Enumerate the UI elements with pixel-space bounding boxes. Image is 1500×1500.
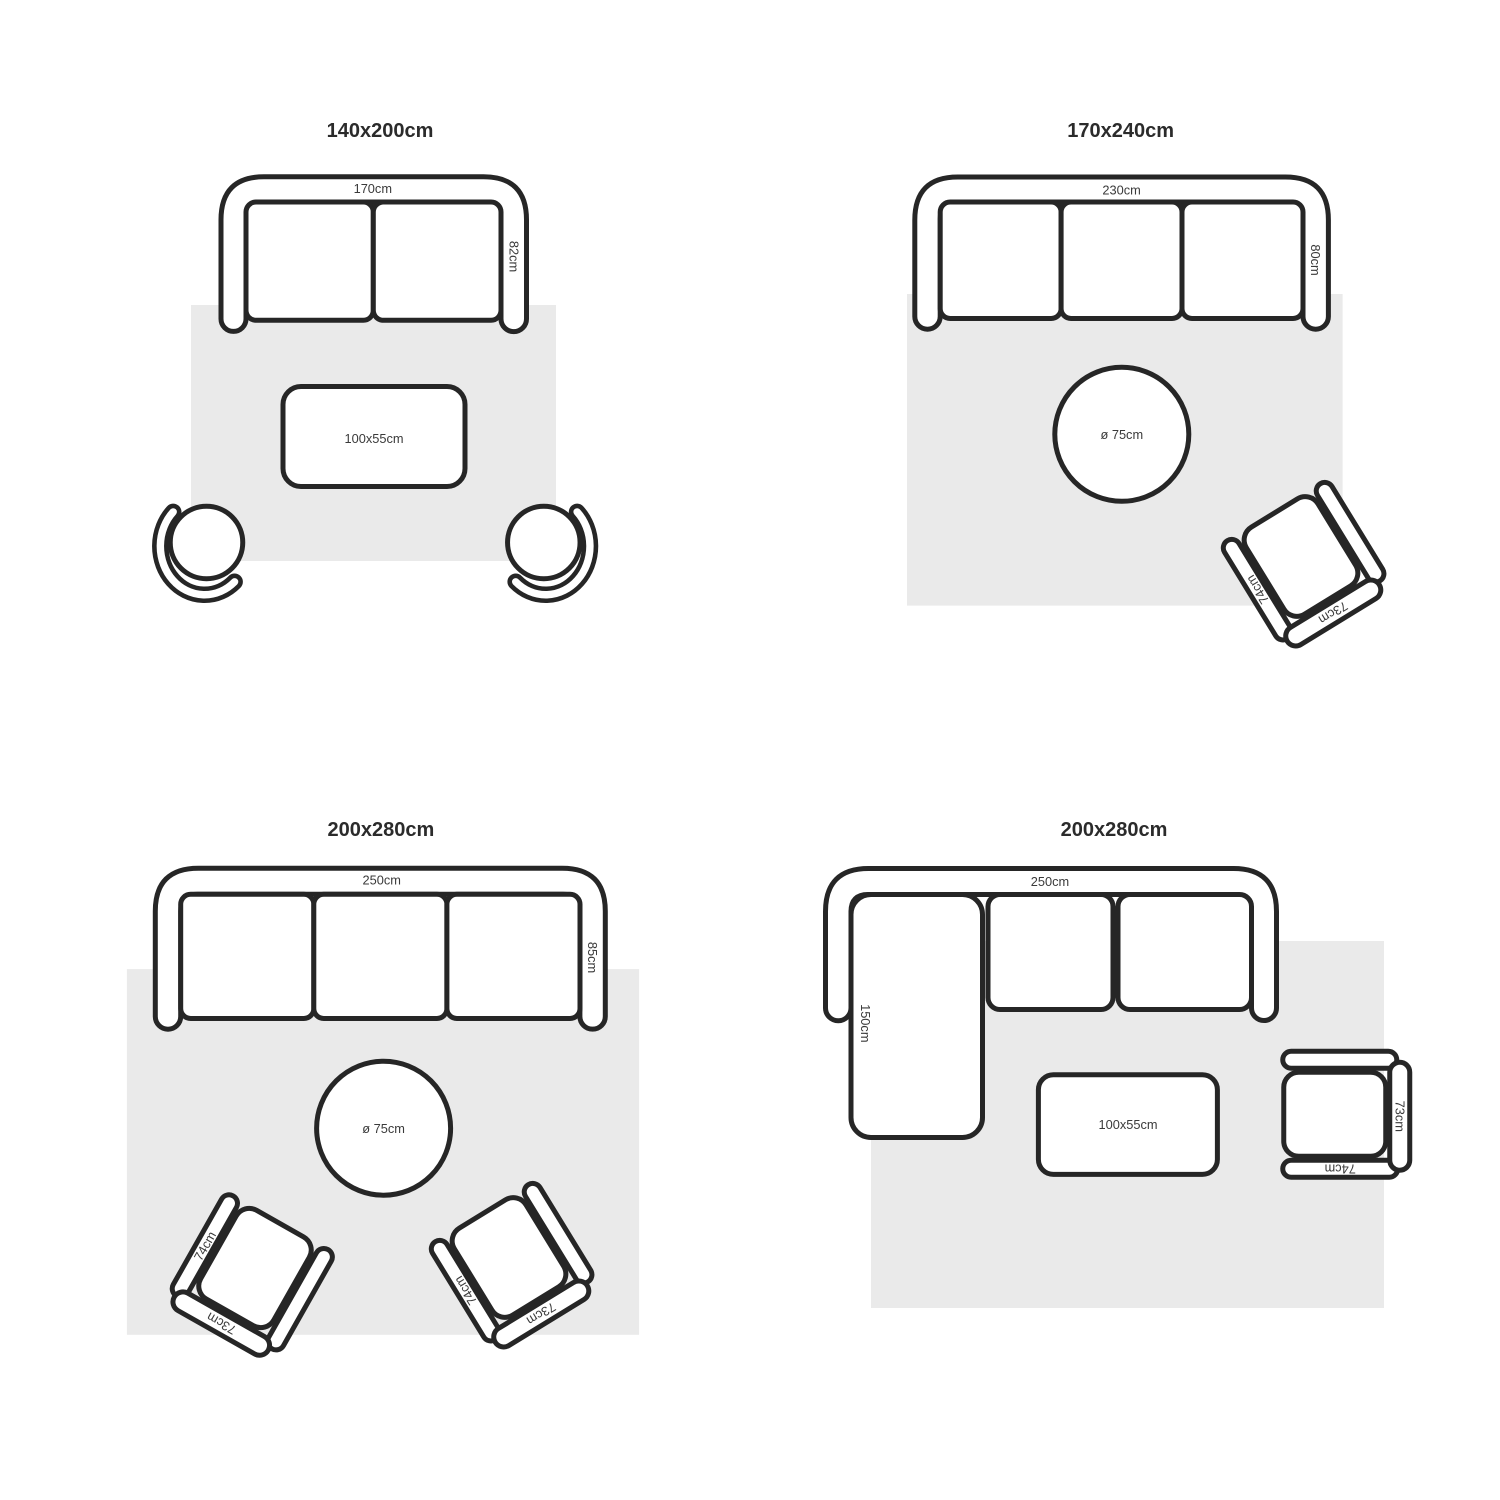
svg-text:ø 75cm: ø 75cm bbox=[362, 1121, 405, 1136]
svg-text:200x280cm: 200x280cm bbox=[1061, 819, 1168, 841]
svg-text:170cm: 170cm bbox=[354, 181, 392, 196]
svg-text:85cm: 85cm bbox=[585, 942, 600, 973]
svg-text:ø 75cm: ø 75cm bbox=[1100, 427, 1143, 442]
svg-text:170x240cm: 170x240cm bbox=[1067, 120, 1174, 142]
svg-text:140x200cm: 140x200cm bbox=[327, 120, 434, 142]
svg-text:250cm: 250cm bbox=[362, 873, 400, 888]
svg-text:230cm: 230cm bbox=[1102, 182, 1140, 197]
svg-text:80cm: 80cm bbox=[1308, 244, 1323, 275]
svg-text:100x55cm: 100x55cm bbox=[1098, 1117, 1157, 1132]
svg-text:100x55cm: 100x55cm bbox=[344, 431, 403, 446]
svg-text:150cm: 150cm bbox=[858, 1004, 873, 1042]
svg-text:82cm: 82cm bbox=[506, 241, 521, 272]
svg-text:200x280cm: 200x280cm bbox=[328, 819, 435, 841]
svg-text:250cm: 250cm bbox=[1031, 874, 1069, 889]
